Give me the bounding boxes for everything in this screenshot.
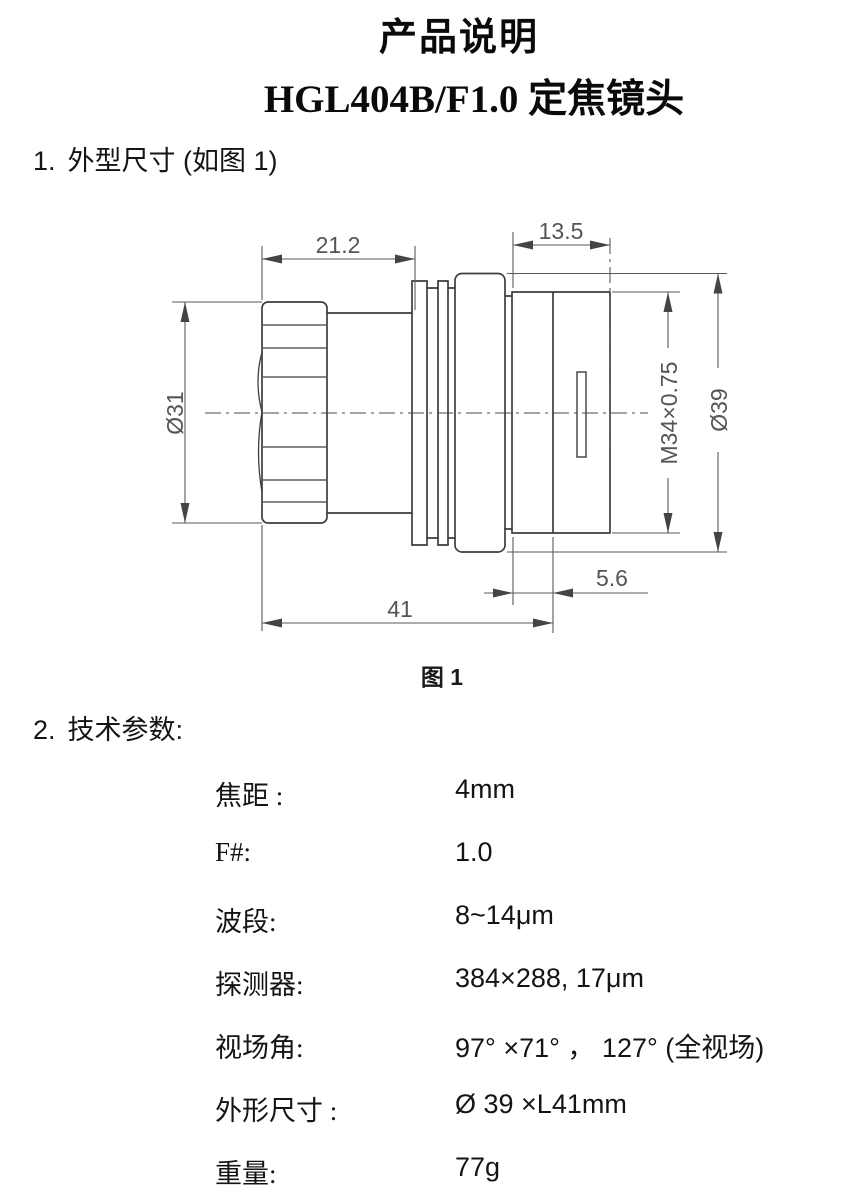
dim-text-dia-39: Ø39 [706,388,732,431]
param-row-dimensions: 外形尺寸 : Ø 39 ×L41mm [215,1089,764,1152]
section-number: 2. [33,715,56,745]
param-row-f-number: F#: 1.0 [215,837,764,900]
dim-body-length: 41 [262,525,553,631]
section-number: 1. [33,146,56,176]
dim-text-dia-31: Ø31 [162,391,188,434]
document-page: 产品说明 HGL404B/F1.0 定焦镜头 1.外型尺寸 (如图 1) [0,0,860,1195]
dim-rear-mount-length: 13.5 [513,218,610,288]
lens-technical-drawing: 21.2 13.5 Ø31 Ø39 [0,192,860,662]
front-cylinder [327,313,412,513]
param-row-weight: 重量: 77g [215,1152,764,1195]
dim-text-21-2: 21.2 [316,232,361,258]
parameter-table: 焦距 : 4mm F#: 1.0 波段: 8~14μm 探测器: 384×288… [215,774,764,1195]
param-value: Ø 39 ×L41mm [455,1089,627,1120]
figure-caption: 图 1 [0,658,860,692]
param-row-detector: 探测器: 384×288, 17μm [215,963,764,1026]
dim-text-41: 41 [387,596,413,622]
param-label: 焦距 : [215,774,455,813]
param-value: 1.0 [455,837,493,868]
param-value: 384×288, 17μm [455,963,644,994]
figure-1-drawing: 21.2 13.5 Ø31 Ø39 [0,192,860,662]
param-value: 97° ×71° ， 127° (全视场) [455,1026,764,1065]
dim-flange-width: 5.6 [484,537,648,633]
param-value: 77g [455,1152,500,1183]
section-label: 外型尺寸 (如图 1) [68,146,278,176]
param-row-waveband: 波段: 8~14μm [215,900,764,963]
dim-text-5-6: 5.6 [596,565,628,591]
param-label: F#: [215,837,455,868]
section-heading-parameters: 2.技术参数: [33,708,183,747]
param-label: 重量: [215,1152,455,1191]
thread-slot [577,372,586,457]
param-value: 4mm [455,774,515,805]
param-label: 探测器: [215,963,455,1002]
param-label: 视场角: [215,1026,455,1065]
dim-front-length: 21.2 [262,232,415,310]
section-label: 技术参数: [68,715,184,745]
section-heading-dimensions: 1.外型尺寸 (如图 1) [33,139,278,178]
param-label: 波段: [215,900,455,939]
page-title: 产品说明 [0,6,860,61]
product-model-subtitle: HGL404B/F1.0 定焦镜头 [0,68,860,124]
param-row-fov: 视场角: 97° ×71° ， 127° (全视场) [215,1026,764,1089]
dim-text-thread: M34×0.75 [656,362,682,465]
param-value: 8~14μm [455,900,554,931]
param-row-focal-length: 焦距 : 4mm [215,774,764,837]
param-label: 外形尺寸 : [215,1089,455,1128]
dim-text-13-5: 13.5 [539,218,584,244]
